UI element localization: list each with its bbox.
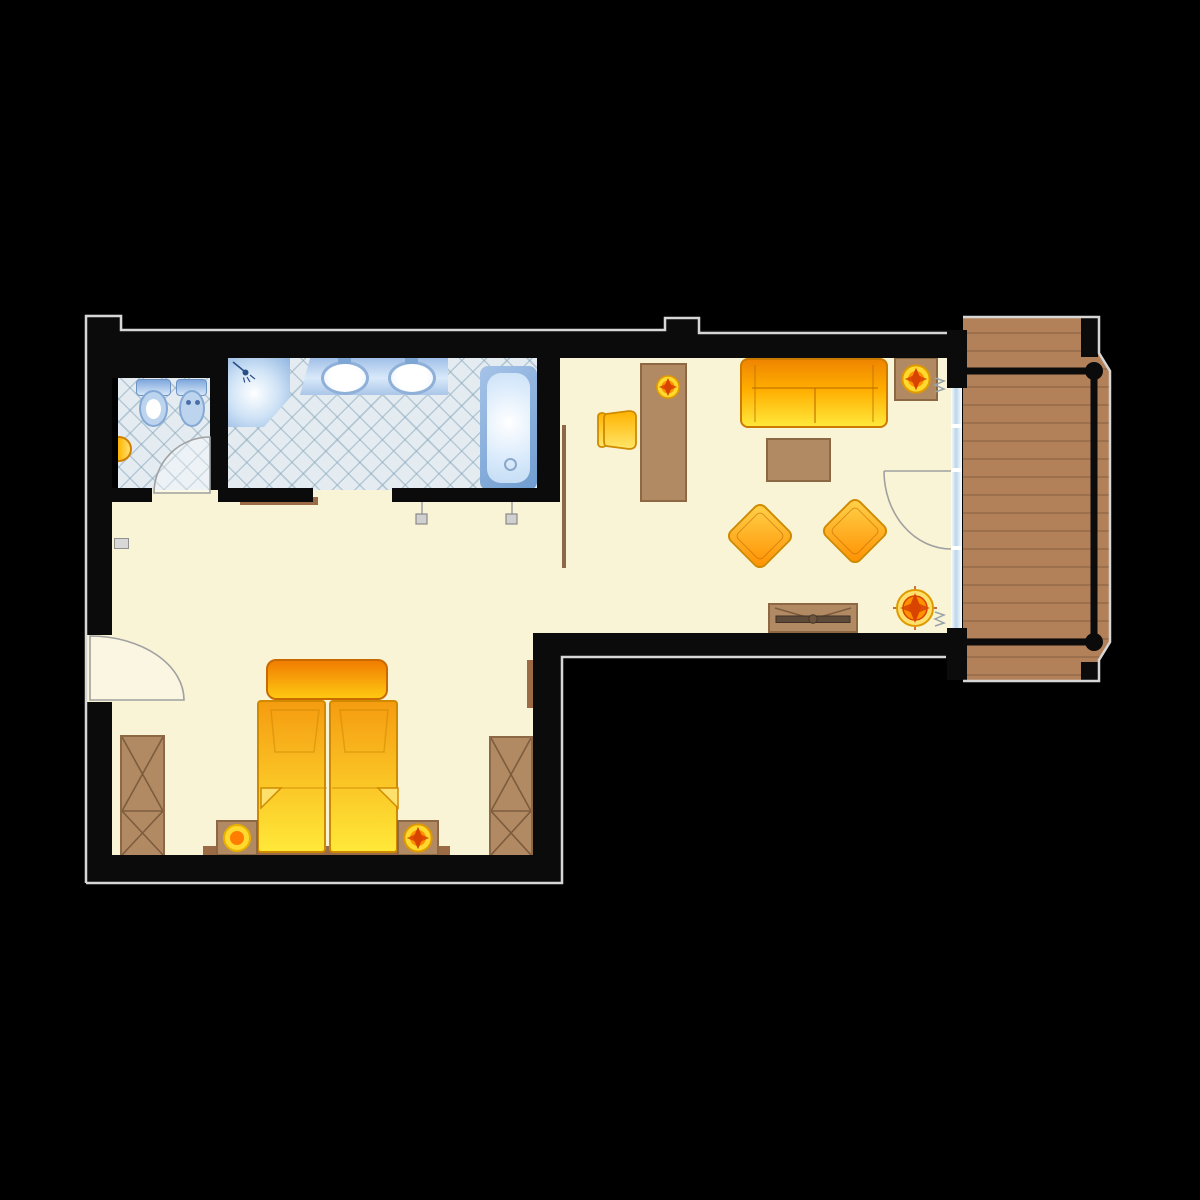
wall-top [88,330,952,358]
bathtub-drain [504,458,517,471]
tv-sideboard [768,603,858,633]
balcony-deck [963,316,1111,682]
nightstand-right [397,820,439,856]
desk-plant-icon [655,374,681,400]
wall-pillar-window-top [947,330,967,388]
balcony-pillar-top [1081,318,1098,357]
wall-bath-bottom-b [218,488,313,502]
nightstand-left [216,820,258,856]
sink-right [388,361,436,395]
wall-bedroom-right [533,633,563,882]
bidet-faucet-dot-right [195,400,200,405]
bedside-lamp-icon [218,822,256,854]
floor-plant-icon [892,585,938,631]
glass-mullion-3 [951,546,962,550]
side-table-plant-icon [900,363,932,395]
wall-pillar-window-bottom [947,628,967,680]
wardrobe-left [120,735,165,857]
glass-mullion-2 [951,468,962,472]
room-divider [562,425,566,568]
mattress-left [257,700,326,853]
sink-left [321,361,369,395]
wall-bath-bottom-a [112,488,152,502]
bidet-faucet-dot-left [186,400,191,405]
double-bed [257,700,398,853]
bathroom-doorway-floor [313,488,392,502]
bidet-bowl [179,390,205,427]
coffee-table [766,438,831,482]
sofa [740,358,888,428]
wall-top-wc-thick [112,358,228,378]
shower-head-icon [231,360,261,386]
floor-plan-canvas [0,0,1200,1200]
toilet-bowl [139,390,168,427]
tv-icon [770,605,856,631]
desk-chair [595,408,639,452]
wardrobe-right [489,736,533,857]
wall-top-notch [666,317,700,331]
tap-left-icon [338,357,351,364]
wall-living-bottom [533,633,967,658]
wall-switch [114,538,129,549]
hall-floor [112,502,562,633]
entry-doorway-floor [86,635,112,702]
bed-headboard-bench [266,659,388,700]
wc-doorway-floor [152,488,218,502]
balcony-pillar-bottom [1081,662,1098,682]
wall-bedroom-bottom [86,855,563,882]
toilet-bowl-inner [146,399,161,419]
nightstand-plant-icon [399,822,437,854]
wall-bath-right [537,330,560,502]
wall-wc-divider [210,378,228,490]
bathtub [480,366,537,490]
wall-bath-bottom-c [392,488,537,502]
wall-left-upper [86,315,112,635]
glass-mullion-1 [951,424,962,428]
mattress-right [329,700,398,853]
tap-right-icon [405,357,418,364]
